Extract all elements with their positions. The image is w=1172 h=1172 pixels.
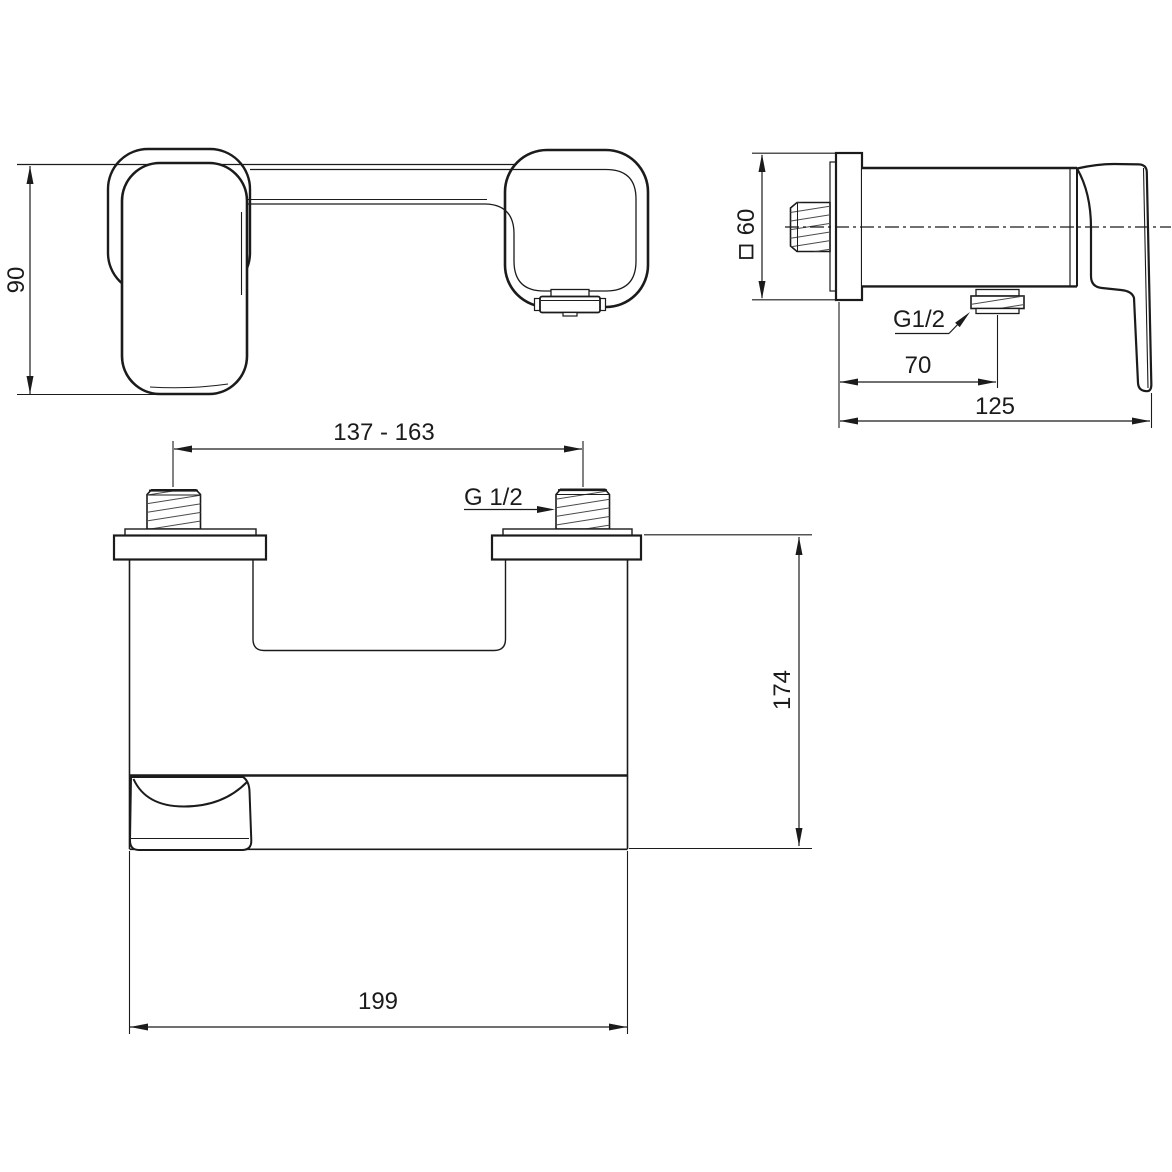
front-view-inlet-thread-label: G 1/2	[464, 484, 523, 511]
dim-70-arrow-right	[978, 379, 996, 386]
dim-90-label: 90	[3, 267, 30, 294]
front-view-handle-end	[130, 777, 251, 850]
dim-199-arrow-right	[609, 1024, 627, 1031]
dim-square60-arrow-down	[759, 281, 766, 299]
front-view-left-flange	[114, 536, 266, 560]
square-symbol-icon	[740, 246, 753, 259]
dim-125-arrow-left	[840, 418, 858, 425]
dim-125-label: 125	[975, 393, 1015, 420]
technical-drawing-sheet: 90	[0, 0, 1172, 1172]
front-view-left-inlet-thread	[147, 490, 201, 529]
dim-137-163-arrow-right	[564, 446, 582, 453]
side-view: 60 G1/2 70 125	[733, 153, 1171, 428]
dim-137-163-label: 137 - 163	[333, 419, 434, 446]
top-view-body-outline	[505, 150, 648, 307]
dim-70-label: 70	[905, 352, 932, 379]
side-view-outlet-connector	[971, 290, 1024, 314]
mixer-dimension-drawing: 90	[0, 0, 1172, 1172]
dim-174-arrow-up	[796, 537, 803, 555]
front-view-leader-arrow	[537, 506, 555, 513]
dim-square60-arrow-up	[759, 154, 766, 172]
dim-137-163	[173, 441, 583, 487]
dim-137-163-arrow-left	[174, 446, 192, 453]
side-view-outlet-thread-label: G1/2	[893, 306, 945, 333]
dim-174-arrow-down	[796, 828, 803, 846]
top-view-handle-lever	[122, 163, 247, 394]
side-view-leader-arrow	[955, 312, 970, 327]
dim-199-label: 199	[358, 988, 398, 1015]
front-view: 137 - 163 G 1/2 174 199	[114, 419, 812, 1034]
front-view-right-inlet-thread	[556, 489, 610, 529]
dim-square60-label: 60	[733, 209, 760, 236]
dim-199-arrow-left	[130, 1024, 148, 1031]
side-view-handle-lever	[1077, 164, 1151, 391]
dim-70-arrow-left	[840, 379, 858, 386]
dim-90-arrow-down	[27, 376, 34, 394]
top-view: 90	[3, 149, 648, 395]
dim-125-arrow-right	[1132, 418, 1150, 425]
front-view-right-flange	[492, 536, 641, 560]
dim-174-label: 174	[769, 670, 796, 710]
dim-90-arrow-up	[27, 166, 34, 184]
